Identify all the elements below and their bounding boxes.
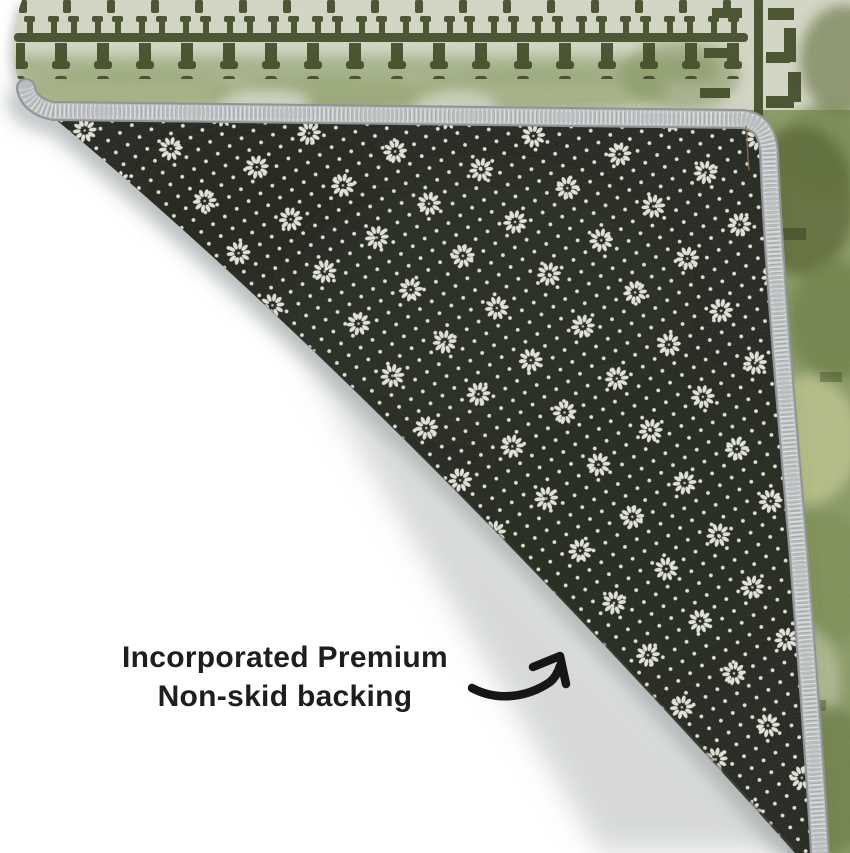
caption: Incorporated Premium Non-skid backing — [60, 638, 510, 716]
rug-illustration — [0, 0, 850, 853]
product-image: Incorporated Premium Non-skid backing — [0, 0, 850, 853]
caption-line-2: Non-skid backing — [60, 677, 510, 716]
rug-folded-corner — [0, 0, 850, 853]
caption-line-1: Incorporated Premium — [60, 638, 510, 677]
